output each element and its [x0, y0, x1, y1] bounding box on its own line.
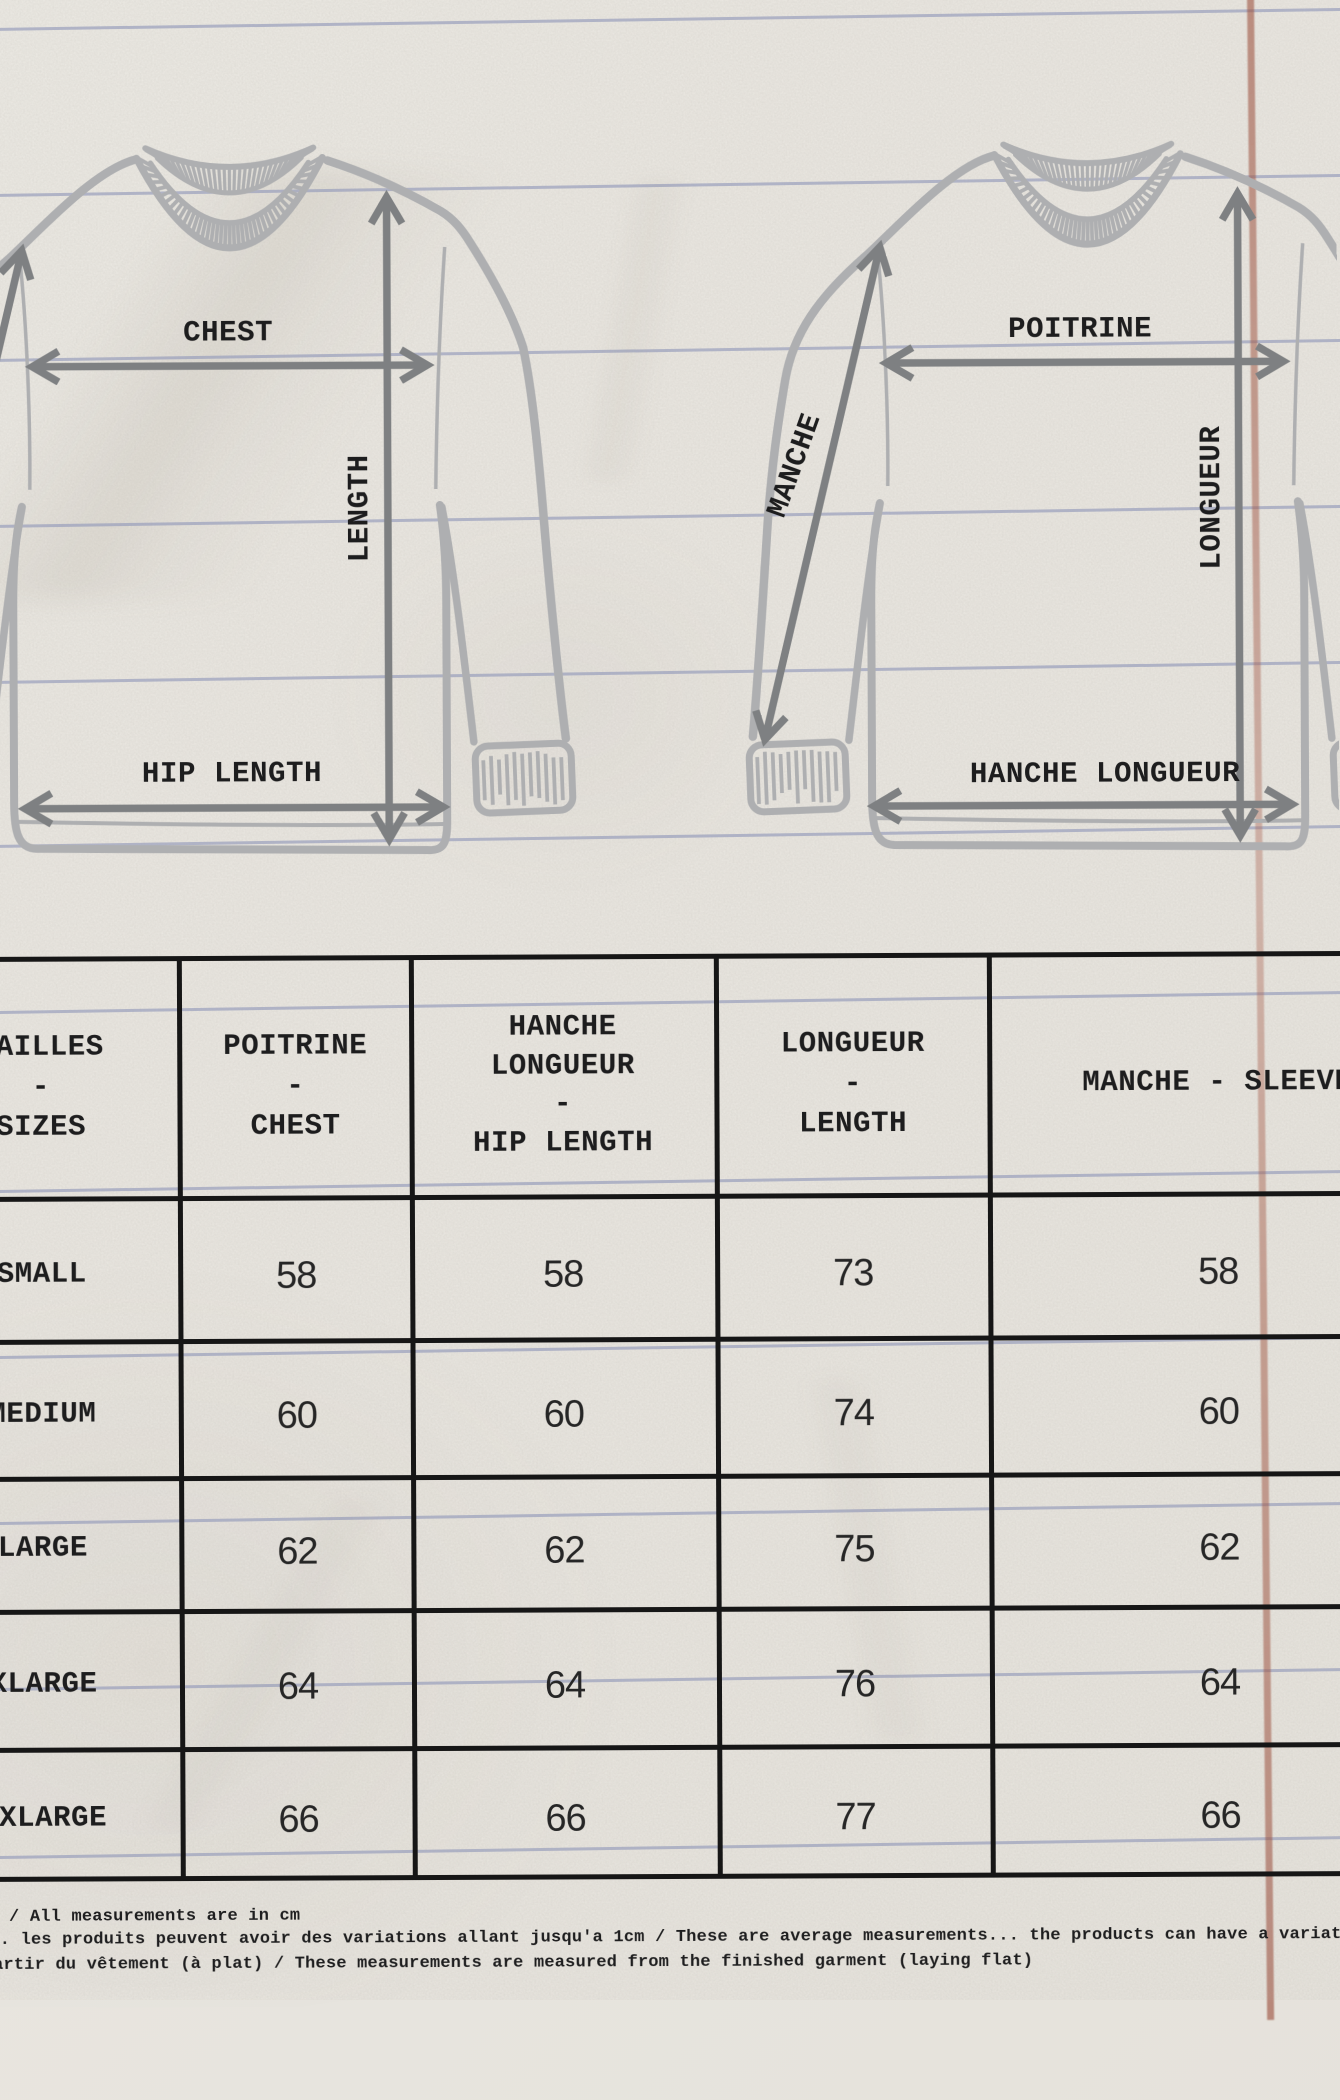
svg-text:CHEST: CHEST — [183, 316, 273, 349]
svg-text:LONGUEUR: LONGUEUR — [1195, 425, 1229, 569]
svg-text:POITRINE: POITRINE — [1008, 312, 1152, 346]
svg-text:LENGTH: LENGTH — [343, 454, 376, 562]
svg-text:HIP LENGTH: HIP LENGTH — [142, 757, 322, 791]
svg-text:HANCHE LONGUEUR: HANCHE LONGUEUR — [970, 757, 1240, 791]
